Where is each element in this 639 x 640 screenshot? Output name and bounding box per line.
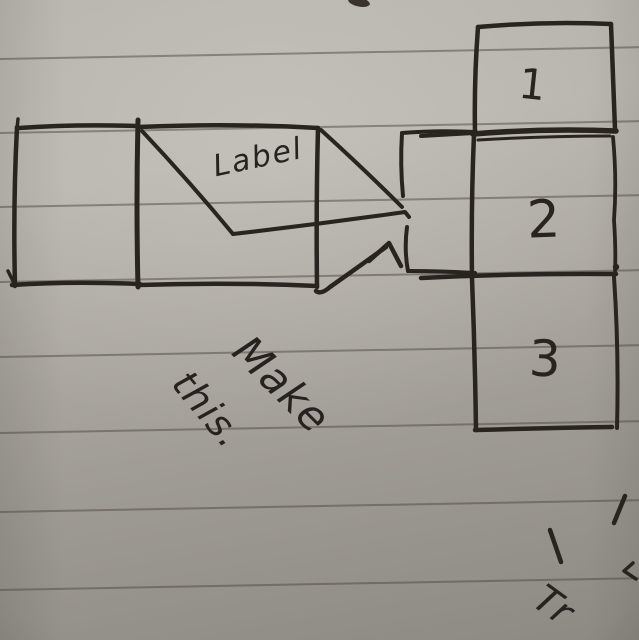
cell-number-2: 2 [526,189,561,250]
pointer-arrow-icon [316,243,401,292]
ink-dot [347,0,370,9]
cell-number-1: 1 [517,59,549,111]
row-square-left [8,119,140,286]
cell-number-3: 3 [528,329,562,388]
small-square [401,131,476,273]
column-divider-bottom [421,274,616,278]
corner-dash-marks [550,496,636,579]
